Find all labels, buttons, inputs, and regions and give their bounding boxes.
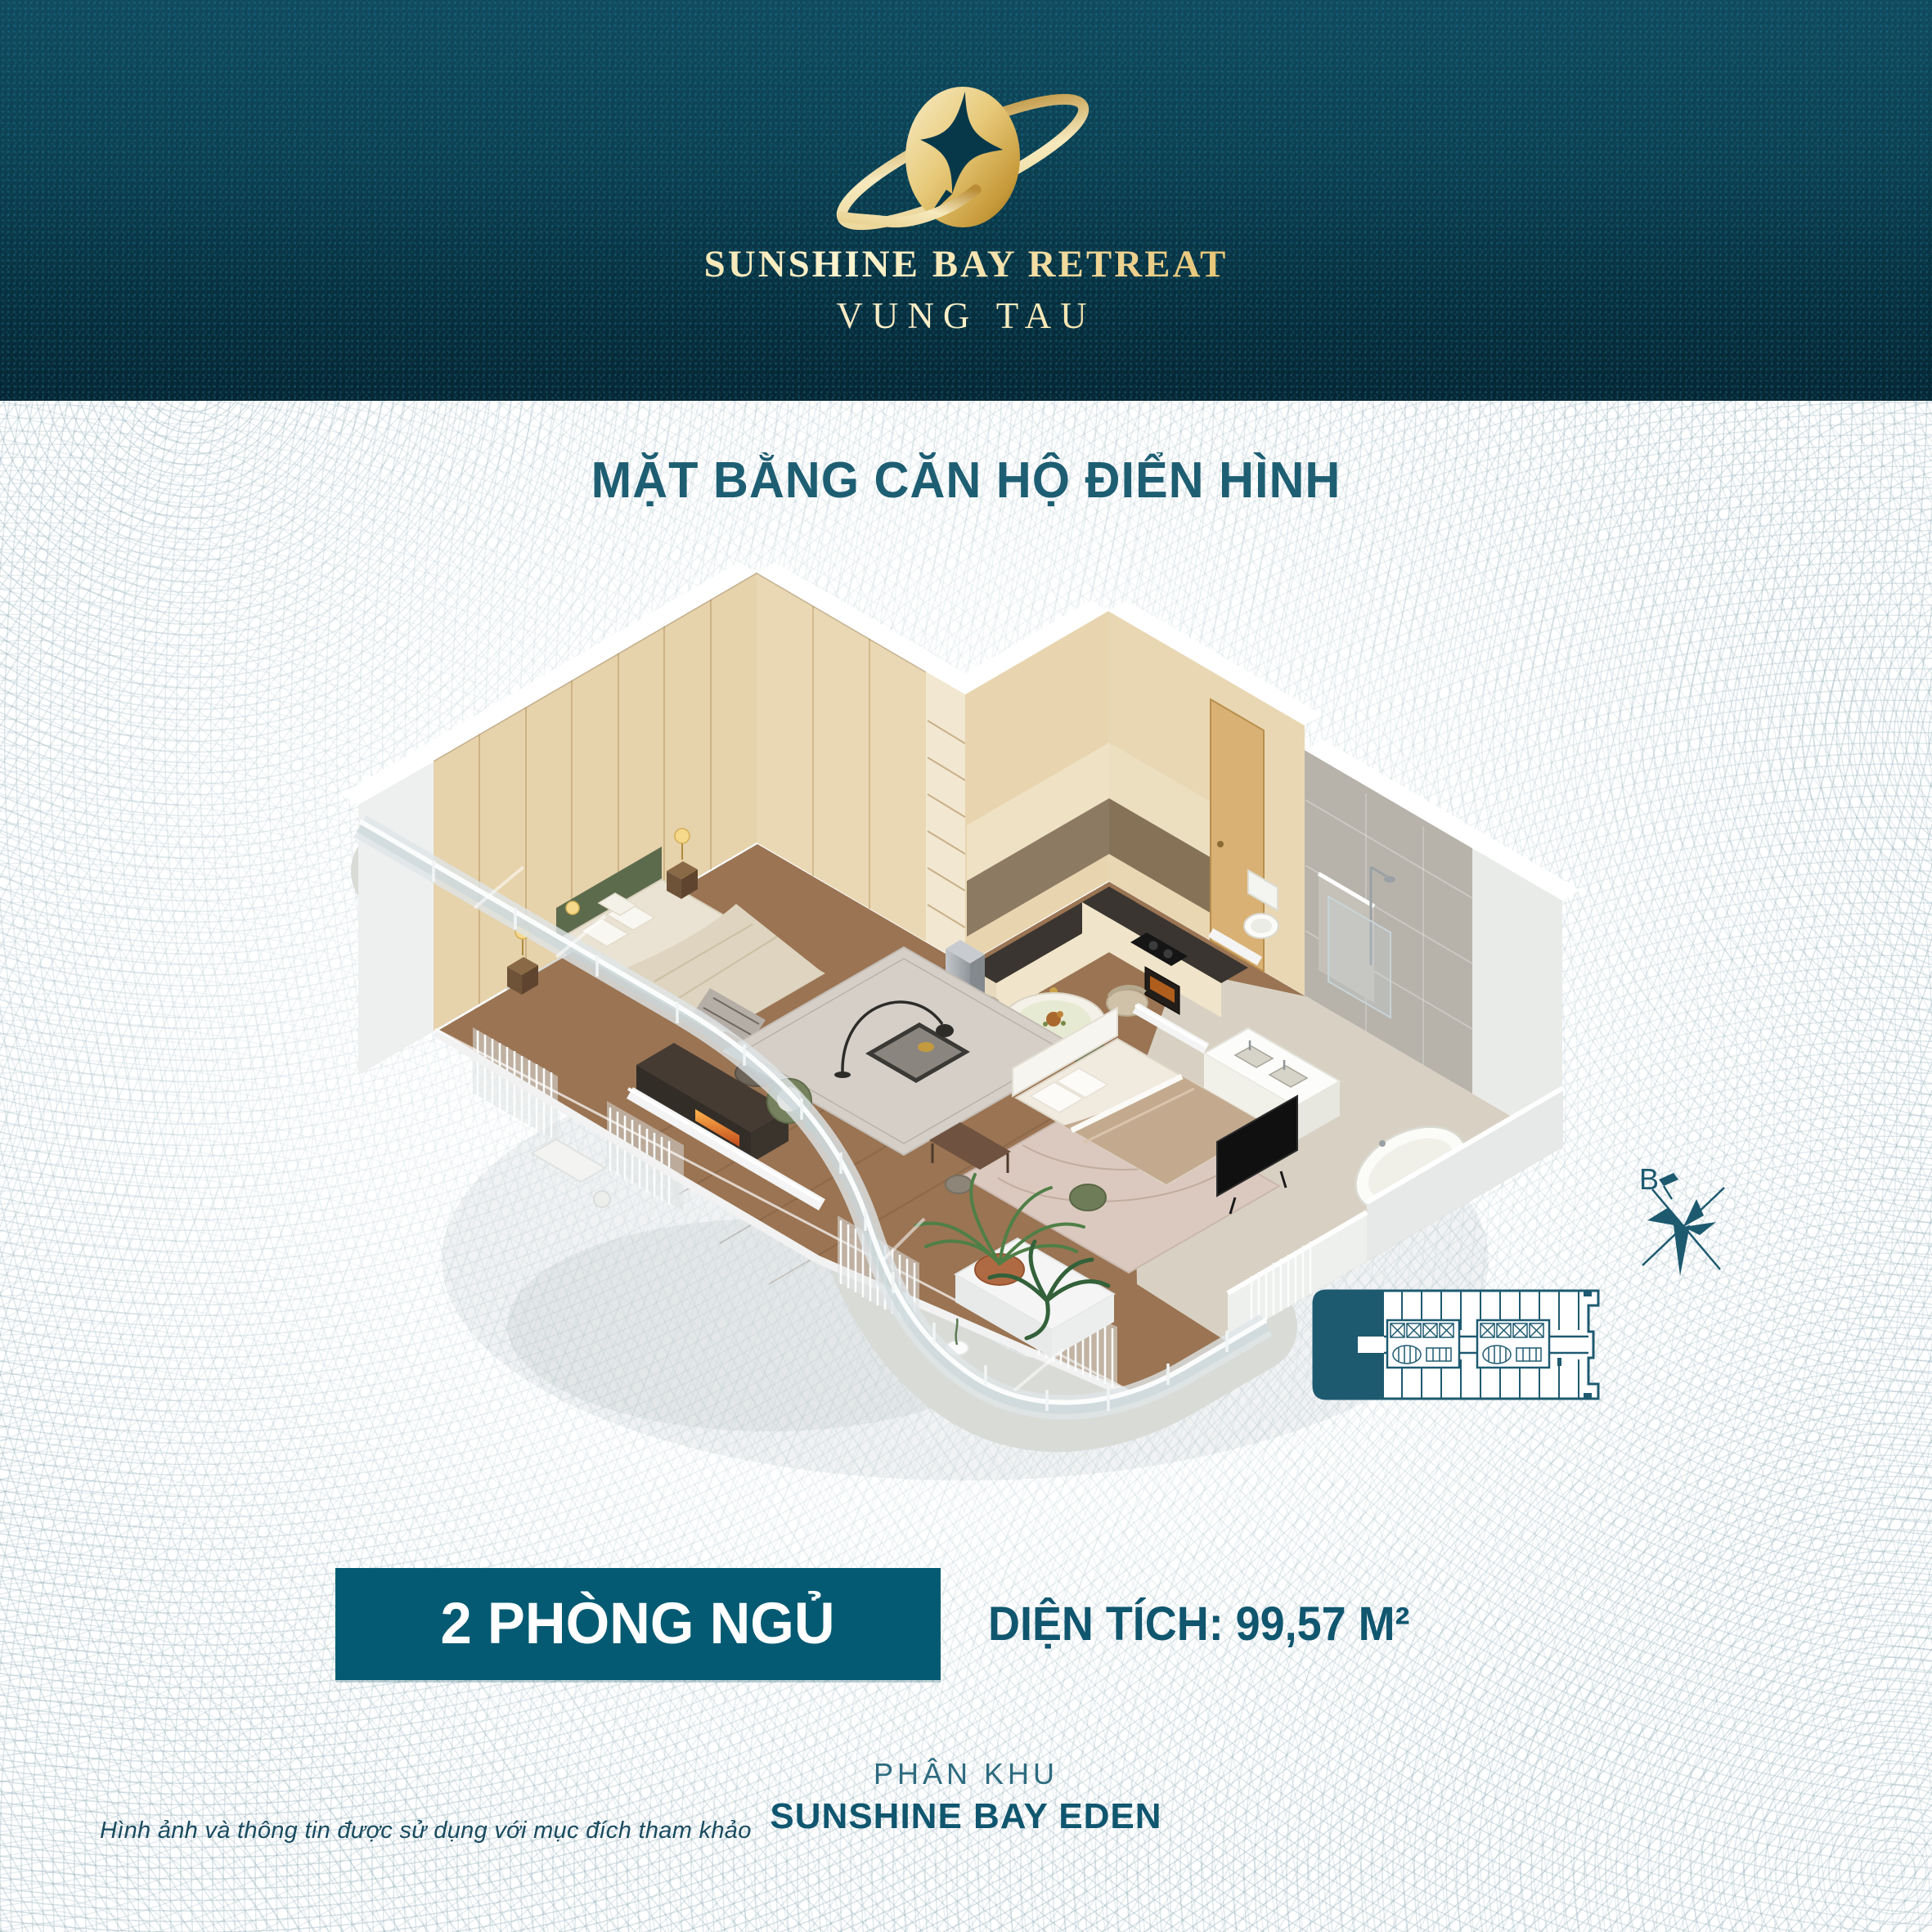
bedroom-count-label: 2 PHÒNG NGỦ bbox=[441, 1591, 835, 1657]
brand-location: VUNG TAU bbox=[0, 294, 1932, 337]
compass-north-icon: B bbox=[1626, 1155, 1741, 1286]
brand-logo-planet-icon bbox=[835, 43, 1097, 236]
bedroom-count-badge: 2 PHÒNG NGỦ bbox=[335, 1568, 941, 1680]
brand-header-band: SUNSHINE BAY RETREAT VUNG TAU bbox=[0, 0, 1932, 401]
page-title: MẶT BẰNG CĂN HỘ ĐIỂN HÌNH bbox=[38, 452, 1894, 510]
zone-prefix-label: PHÂN KHU bbox=[0, 1757, 1932, 1791]
floorplate-diagram bbox=[1305, 1279, 1606, 1410]
area-label: DIỆN TÍCH: 99,57 M² bbox=[988, 1568, 1410, 1680]
brand-name: SUNSHINE BAY RETREAT bbox=[0, 242, 1932, 286]
compass-north-label: B bbox=[1639, 1162, 1659, 1196]
disclaimer-text: Hình ảnh và thông tin được sử dụng với m… bbox=[100, 1817, 752, 1844]
